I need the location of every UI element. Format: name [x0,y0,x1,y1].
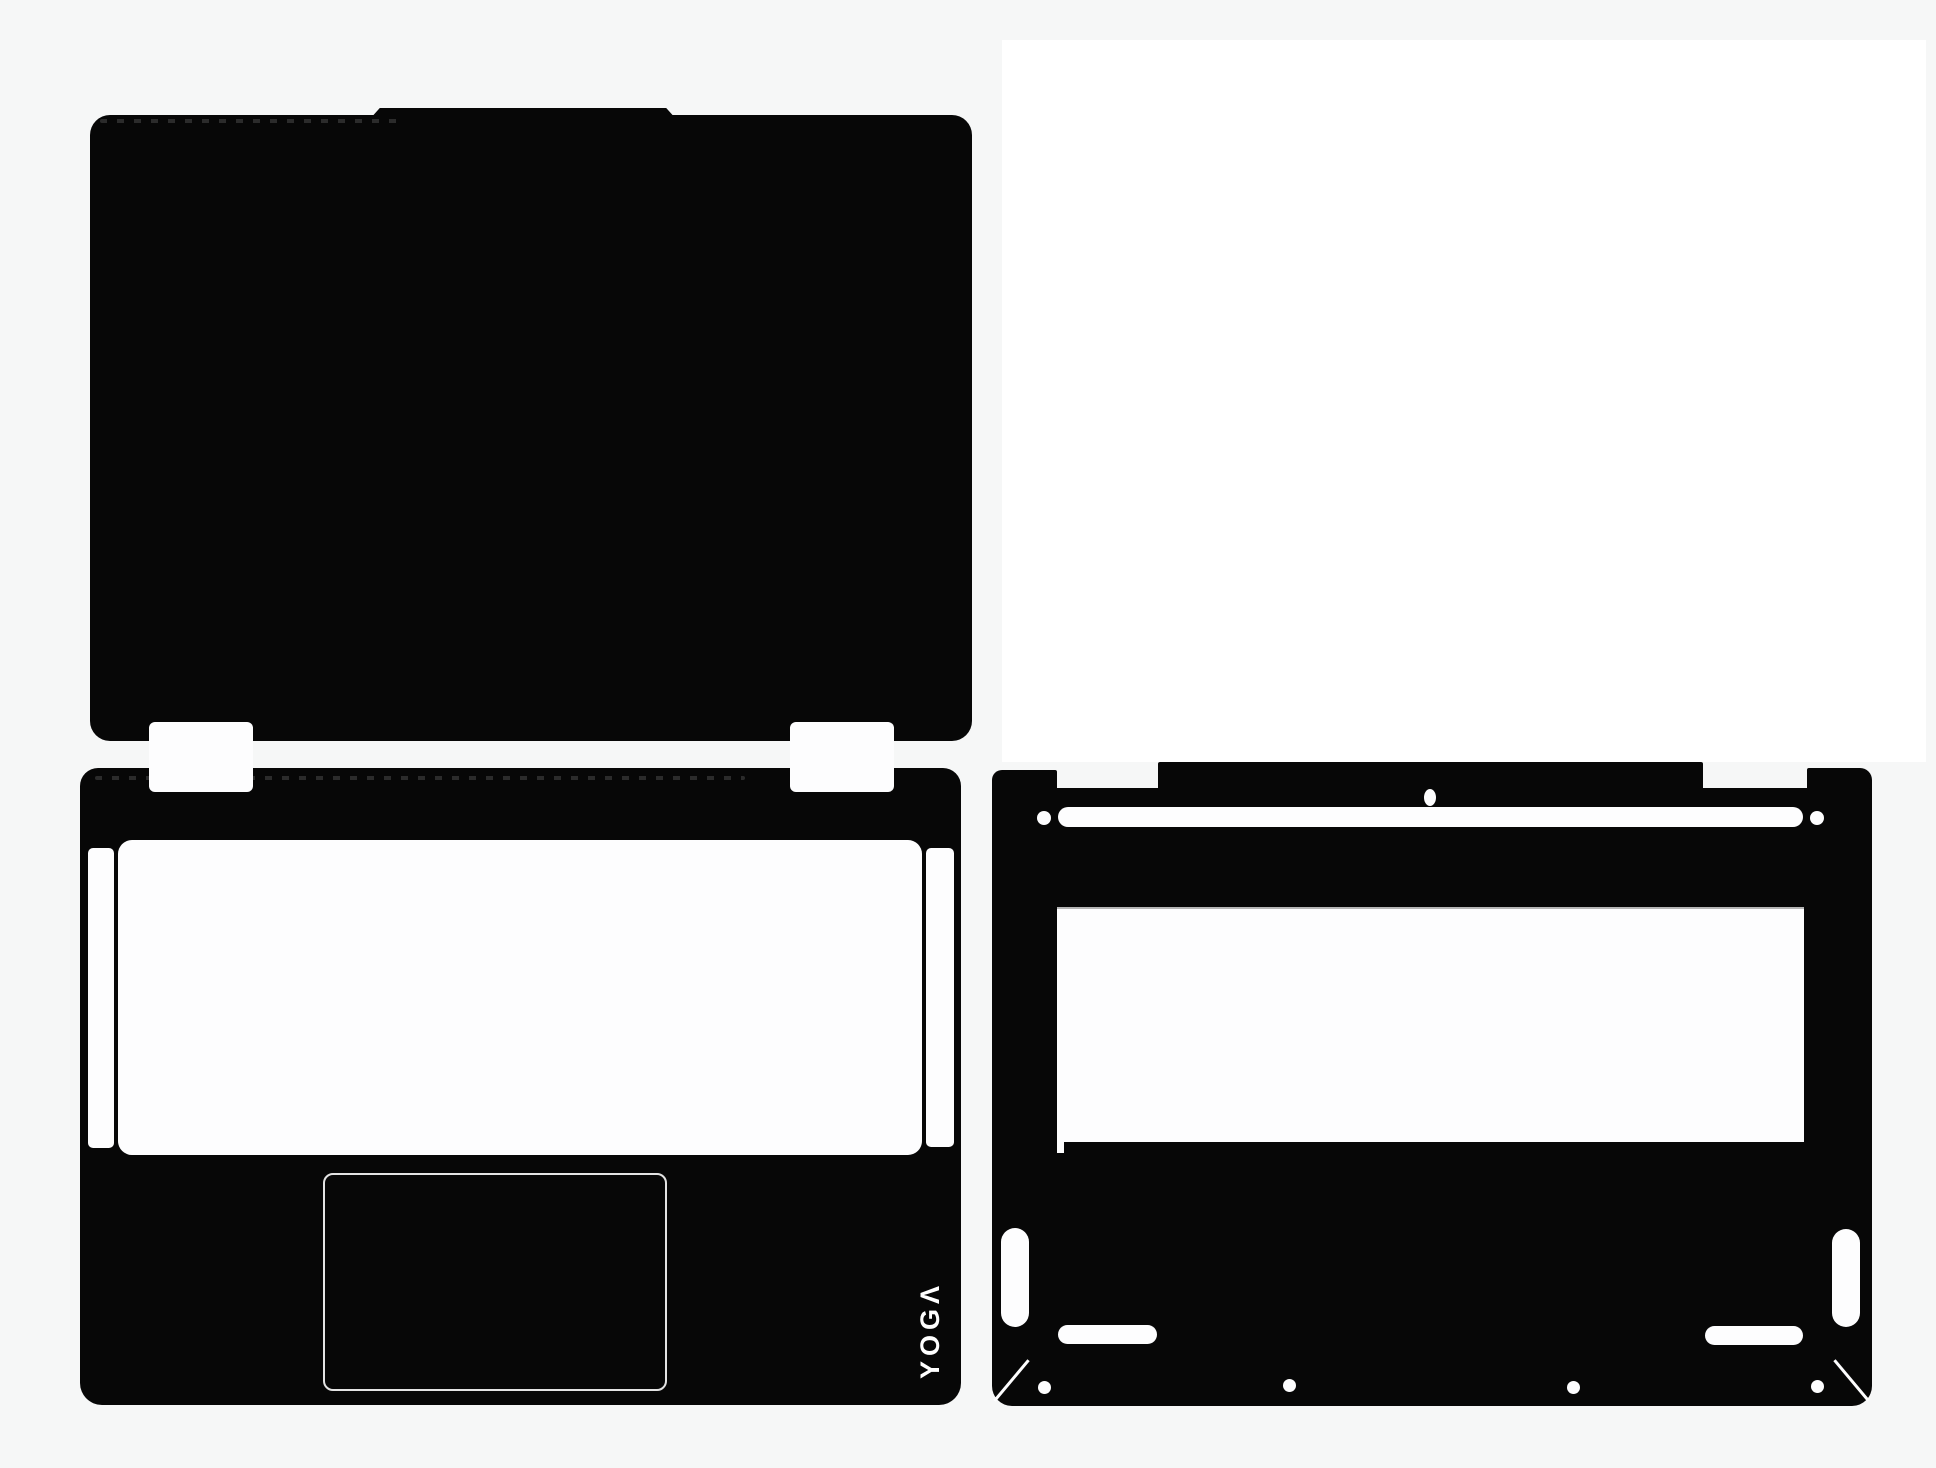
screw-hole-2 [1283,1379,1296,1392]
front-foot-cutout-left [1058,1325,1157,1344]
screw-hole-4 [1811,1380,1824,1393]
vent-window-notch [1057,1140,1064,1153]
product-photo-canvas: YOGΛ [0,0,1936,1468]
left-speaker-strip-cutout [88,848,114,1148]
hinge-tab-cutout-right [790,722,894,792]
screw-hole-3 [1567,1381,1580,1394]
front-foot-cutout-right [1705,1326,1803,1345]
right-speaker-strip-cutout [926,848,954,1147]
lid-perforation-dashes [100,119,400,123]
slot-end-hole-left [1037,811,1051,825]
hinge-strip-piece [1158,762,1703,790]
hinge-tab-cutout-left [149,722,253,792]
side-foot-cutout-right [1832,1229,1860,1327]
center-hinge-hole [1424,789,1436,806]
screw-hole-1 [1038,1381,1051,1394]
photo-backdrop [1002,40,1926,762]
keyboard-cutout [118,840,922,1155]
vent-label-window-cutout [1057,907,1804,1142]
trackpad-outline [323,1173,667,1391]
side-foot-cutout-left [1001,1228,1029,1327]
slot-end-hole-right [1810,811,1824,825]
lid-skin-body [90,115,972,741]
yoga-logo: YOGΛ [916,1275,944,1385]
rear-vent-slot-cutout [1058,807,1803,827]
